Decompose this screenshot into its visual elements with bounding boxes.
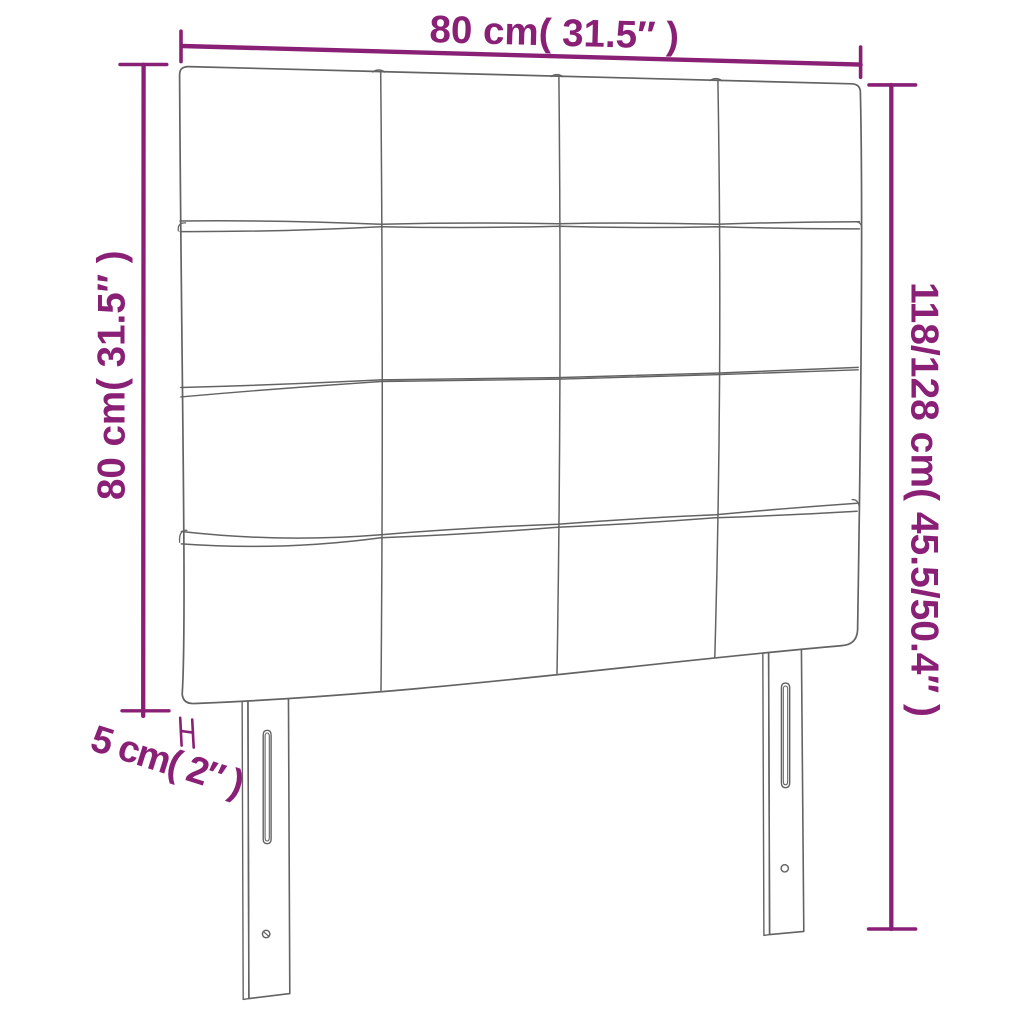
svg-text:5 cm( 2″ ): 5 cm( 2″ ) [86, 718, 248, 805]
svg-text:80 cm( 31.5″ ): 80 cm( 31.5″ ) [91, 250, 134, 500]
svg-text:118/128 cm( 45.5/50.4″ ): 118/128 cm( 45.5/50.4″ ) [903, 282, 946, 717]
svg-text:80 cm( 31.5″ ): 80 cm( 31.5″ ) [429, 8, 680, 58]
